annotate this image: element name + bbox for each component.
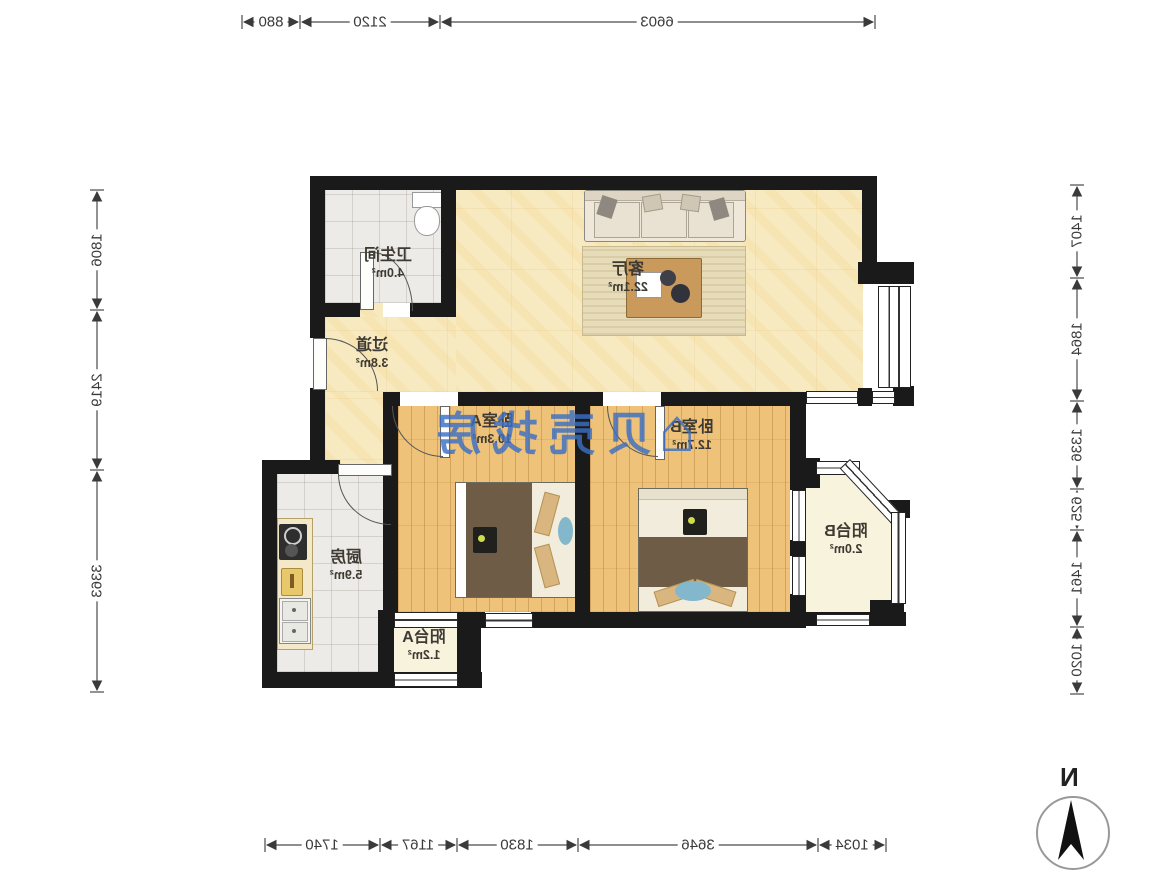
dimension-label: 6603: [636, 14, 677, 31]
wall: [441, 176, 456, 317]
watermark-text: 贝壳找房: [424, 398, 652, 464]
room-label-hallway: 过道 3.8m²: [322, 336, 422, 372]
dimension-label: 2120: [349, 14, 390, 31]
wall: [410, 303, 446, 317]
dimension-label: 625: [1069, 492, 1086, 525]
sofa: [584, 190, 746, 242]
dimension-label: 1830: [496, 837, 537, 854]
toilet-bowl: [414, 206, 440, 236]
wall: [862, 176, 877, 272]
wall: [310, 176, 877, 190]
window-bedroomA: [485, 613, 533, 628]
dimension-label: 1407: [1069, 210, 1086, 251]
dimension-label: 1461: [1069, 557, 1086, 598]
wall: [590, 612, 806, 628]
north-arrow-icon: [1036, 796, 1106, 866]
dimension-label: 1167: [398, 837, 438, 854]
room-area: 1.2m²: [374, 648, 474, 664]
watermark: ⌂ 贝壳找房: [424, 398, 695, 464]
room-area: 22.1m²: [578, 280, 678, 296]
dimension-label: 880: [254, 14, 287, 31]
room-name: 阳台B: [796, 522, 896, 542]
window-balconyB-bottom: [816, 614, 870, 626]
house-icon: ⌂: [658, 402, 695, 460]
dimension-label: 1864: [1069, 318, 1086, 359]
room-area: 5.9m²: [296, 568, 396, 584]
room-name: 阳台A: [374, 628, 474, 648]
dimension-label: 2419: [89, 369, 106, 410]
wall: [262, 460, 277, 688]
wall: [858, 262, 914, 284]
window: [806, 391, 858, 404]
dimension-label: 1336: [1069, 424, 1086, 465]
room-area: 3.8m²: [322, 356, 422, 372]
room-area: 4.0m²: [338, 266, 438, 282]
dimension-label: 1034: [831, 837, 872, 854]
window: [872, 391, 895, 404]
wall: [531, 612, 590, 628]
room-label-living: 客厅 22.1m²: [578, 260, 678, 296]
room-area: 2.0m²: [796, 542, 896, 558]
room-name: 过道: [322, 336, 422, 356]
window-balconyA-top: [394, 612, 458, 628]
bay-window-living: [878, 286, 911, 388]
room-name: 厨房: [296, 548, 396, 568]
wall: [262, 672, 395, 688]
dimension-label: 3363: [89, 560, 106, 601]
wall: [325, 303, 360, 317]
compass-north-label: N: [1060, 762, 1079, 793]
room-label-balconyB: 阳台B 2.0m²: [796, 522, 896, 558]
dimension-label: 1806: [89, 229, 106, 270]
dimension-label: 1740: [301, 837, 342, 854]
wall: [262, 460, 340, 474]
room-label-bathroom: 卫生间 4.0m²: [338, 246, 438, 282]
bed-B: [638, 488, 748, 612]
bed-A: [455, 482, 577, 598]
window-bedroomB-balcony-2: [792, 556, 806, 596]
room-name: 客厅: [578, 260, 678, 280]
room-label-balconyA: 阳台A 1.2m²: [374, 628, 474, 664]
wall: [893, 386, 914, 406]
dimension-label: 3646: [677, 837, 718, 854]
window-balconyA-bottom: [394, 673, 458, 687]
room-label-kitchen: 厨房 5.9m²: [296, 548, 396, 584]
floor-plan-canvas: 客厅 22.1m² 卫生间 4.0m² 过道 3.8m² 卧室A 10.3m² …: [0, 0, 1172, 875]
room-name: 卫生间: [338, 246, 438, 266]
dimension-label: 1020: [1069, 639, 1086, 680]
wall: [310, 176, 325, 338]
wall: [858, 388, 872, 406]
sink: [279, 598, 311, 644]
